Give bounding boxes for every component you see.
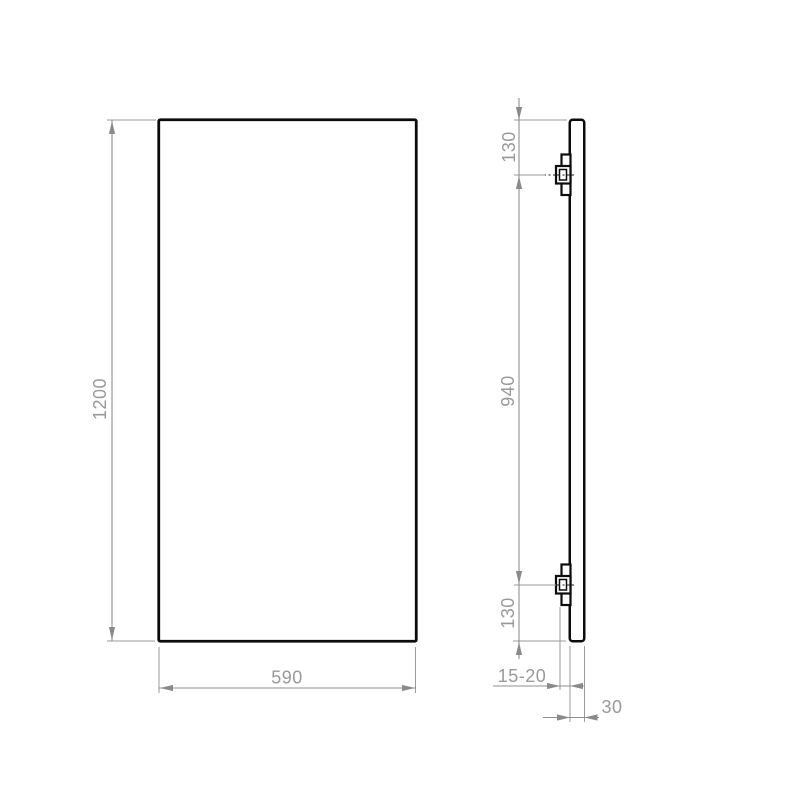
front-height-dimension-label: 1200 xyxy=(90,378,110,420)
arrowhead-right-icon xyxy=(557,714,570,720)
bracket-spacing-label: 940 xyxy=(498,375,518,407)
arrowhead-left-icon xyxy=(570,683,583,689)
bottom-bracket-offset-label: 130 xyxy=(498,597,518,629)
arrowhead-up-icon xyxy=(516,176,522,189)
front-width-dimension-label: 590 xyxy=(271,668,303,688)
arrowhead-right-icon xyxy=(547,683,560,689)
side-view-panel xyxy=(570,120,585,642)
arrowhead-up-icon xyxy=(516,642,522,655)
arrowhead-down-icon xyxy=(516,107,522,120)
arrowhead-left-icon xyxy=(585,714,598,720)
arrowhead-right-icon xyxy=(402,685,415,691)
drawing-canvas: 1200 590 130 xyxy=(0,0,800,800)
arrowhead-up-icon xyxy=(109,121,115,134)
wall-gap-dimension-label: 15-20 xyxy=(498,666,547,686)
arrowhead-down-icon xyxy=(516,571,522,584)
technical-drawing: 1200 590 130 xyxy=(0,0,800,800)
thickness-dimension-label: 30 xyxy=(601,697,622,717)
front-view-panel xyxy=(159,120,417,642)
top-bracket-offset-label: 130 xyxy=(499,131,519,163)
arrowhead-down-icon xyxy=(109,627,115,640)
arrowhead-left-icon xyxy=(160,685,173,691)
